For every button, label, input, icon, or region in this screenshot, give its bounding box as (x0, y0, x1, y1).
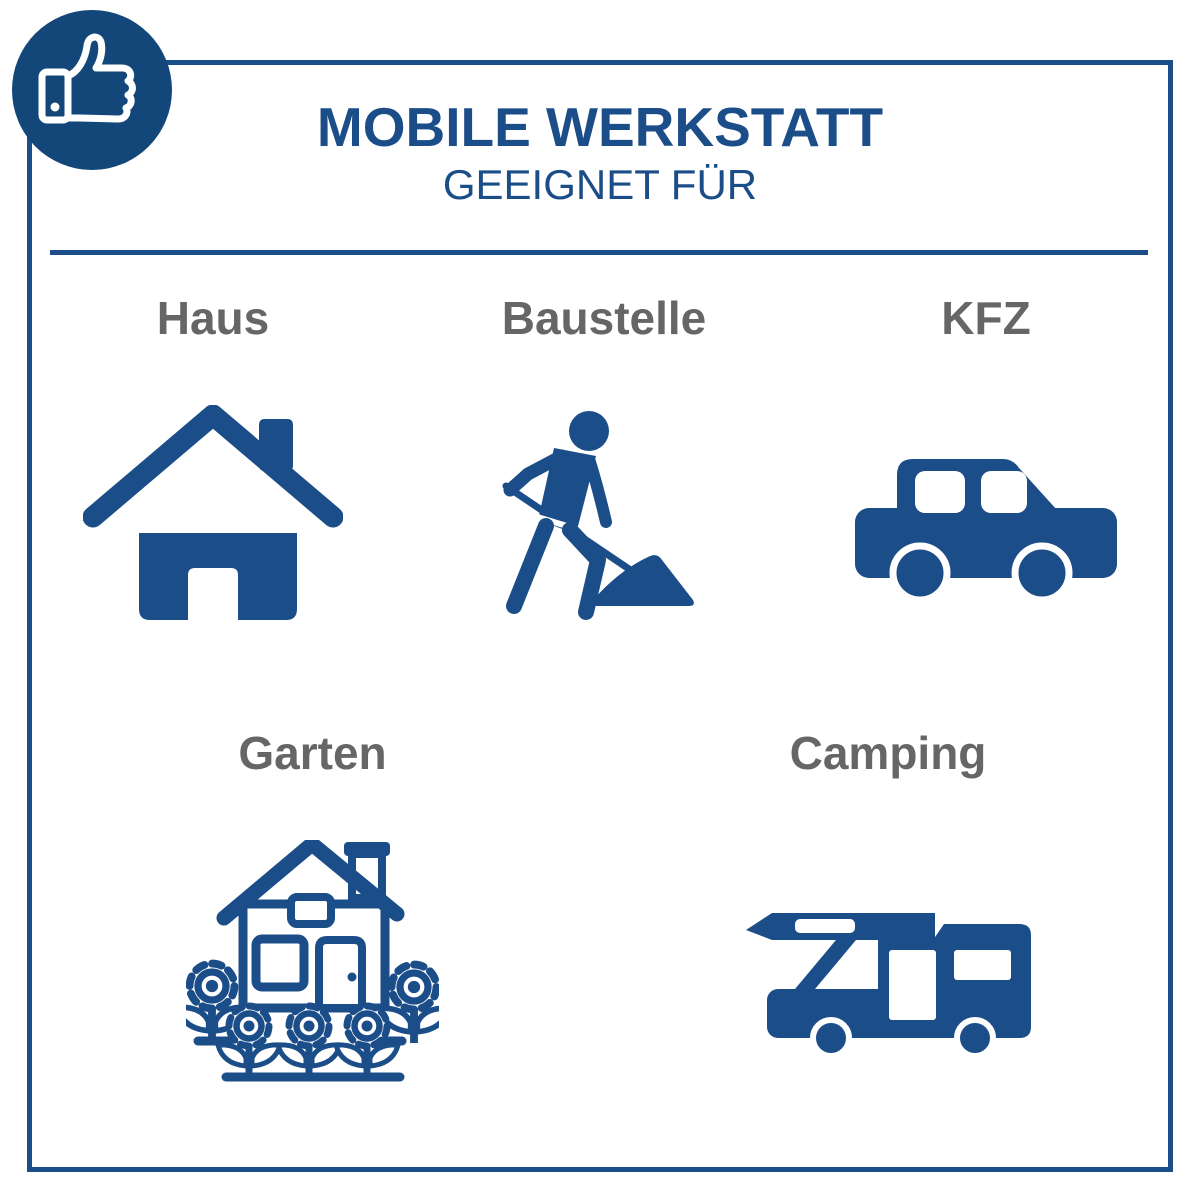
item-label: Camping (738, 730, 1038, 776)
construction-worker-icon (498, 410, 710, 627)
item-label: KFZ (855, 295, 1117, 341)
infographic: MOBILE WERKSTATT GEEIGNET FÜR Haus Baust… (0, 0, 1200, 1200)
item-label: Baustelle (498, 295, 710, 341)
cell-camping: Camping (738, 730, 1038, 1066)
house-icon (83, 405, 343, 637)
cell-garten: Garten (186, 730, 439, 1087)
cell-kfz: KFZ (855, 295, 1117, 603)
camper-van-icon (738, 888, 1038, 1066)
cell-baustelle: Baustelle (498, 295, 710, 627)
cell-haus: Haus (83, 295, 343, 637)
item-label: Haus (83, 295, 343, 341)
car-icon (855, 453, 1117, 603)
garden-house-flowers-icon (186, 840, 439, 1087)
page-subtitle: GEEIGNET FÜR (0, 164, 1200, 206)
page-title: MOBILE WERKSTATT (0, 100, 1200, 155)
divider-line (50, 250, 1148, 255)
item-label: Garten (186, 730, 439, 776)
